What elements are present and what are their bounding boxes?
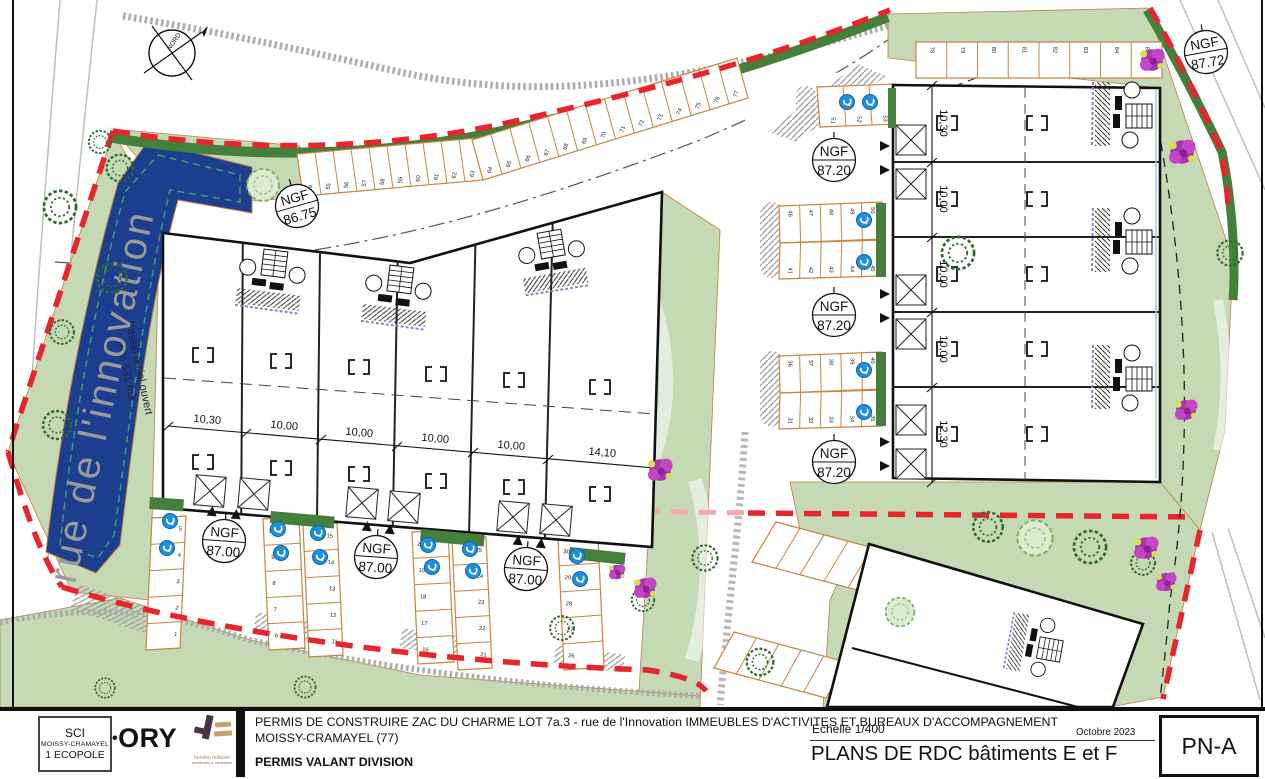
parking-col-6-10: 109876 xyxy=(263,517,305,650)
ngf-marker: NGF87.72 xyxy=(1180,21,1231,77)
scale-label: Echelle 1/400 xyxy=(812,722,885,736)
svg-text:83: 83 xyxy=(1082,47,1088,53)
svg-text:81: 81 xyxy=(1021,47,1027,53)
svg-text:6: 6 xyxy=(275,633,279,639)
svg-text:26: 26 xyxy=(568,653,575,660)
ngf-marker: NGF87.00 xyxy=(201,512,247,564)
title-divider-bar xyxy=(236,711,245,777)
building-e: 10,30 10,00 10,00 10,00 10,00 14,10 xyxy=(149,192,662,565)
svg-text:34: 34 xyxy=(848,416,854,423)
site-plan-drawing: Bassin à ciel ouvert env. 531 m3 5455565… xyxy=(0,0,1265,707)
svg-text:17: 17 xyxy=(421,621,428,628)
svg-text:NGF: NGF xyxy=(820,144,849,159)
svg-text:12,30: 12,30 xyxy=(937,420,949,448)
svg-text:50: 50 xyxy=(869,207,875,213)
svg-text:10,00: 10,00 xyxy=(497,439,525,453)
svg-text:10,00: 10,00 xyxy=(937,185,949,213)
architect-subtitle: architectes & urbanistes xyxy=(186,761,238,766)
svg-text:87.00: 87.00 xyxy=(508,571,543,588)
svg-text:18: 18 xyxy=(420,594,427,601)
parking-row-51-53: 515253 xyxy=(817,84,898,127)
svg-text:87.20: 87.20 xyxy=(817,163,851,178)
svg-text:47: 47 xyxy=(807,210,813,216)
svg-text:40: 40 xyxy=(869,357,875,363)
svg-text:33: 33 xyxy=(828,416,834,422)
svg-text:82: 82 xyxy=(1051,47,1057,53)
architect-logo-mark xyxy=(187,714,237,750)
svg-text:87.00: 87.00 xyxy=(358,559,393,576)
project-title-line2: MOISSY-CRAMAYEL (77) xyxy=(255,731,398,745)
svg-text:14,10: 14,10 xyxy=(588,446,616,460)
svg-text:NGF: NGF xyxy=(820,446,849,461)
scale-underline xyxy=(810,740,1155,741)
date-label: Octobre 2023 xyxy=(1076,727,1135,738)
svg-text:49: 49 xyxy=(848,208,854,214)
svg-text:48: 48 xyxy=(828,209,834,215)
svg-text:10,30: 10,30 xyxy=(193,413,221,427)
client-city: MOISSY-CRAMAYEL xyxy=(40,740,110,749)
parking-col-21-25: 2524232221 xyxy=(452,537,492,670)
svg-text:28: 28 xyxy=(566,601,573,608)
parking-col-11-15: 1514131211 xyxy=(303,523,343,657)
svg-text:36: 36 xyxy=(787,360,793,366)
svg-text:87.00: 87.00 xyxy=(206,543,241,560)
svg-text:84: 84 xyxy=(1113,47,1119,54)
svg-text:7: 7 xyxy=(273,607,277,613)
ory-logo: •ORY xyxy=(112,723,177,754)
svg-text:41: 41 xyxy=(787,267,793,273)
svg-text:22: 22 xyxy=(479,626,486,633)
svg-text:53: 53 xyxy=(882,115,888,121)
svg-text:10,00: 10,00 xyxy=(345,426,373,440)
svg-text:10,00: 10,00 xyxy=(421,432,449,446)
svg-text:38: 38 xyxy=(828,359,834,365)
svg-text:42: 42 xyxy=(807,267,813,273)
svg-text:44: 44 xyxy=(848,266,854,273)
parking-col-1-5: 54321 xyxy=(146,516,186,650)
skylight-boxes-f xyxy=(896,125,926,479)
svg-text:12: 12 xyxy=(330,613,337,620)
client-name: SCI xyxy=(40,727,110,740)
svg-text:87.20: 87.20 xyxy=(817,465,851,480)
sheet-number-box: PN-A xyxy=(1159,715,1259,777)
svg-text:51: 51 xyxy=(830,117,836,123)
svg-text:87.20: 87.20 xyxy=(817,318,851,333)
parking-row-78-85: 7879808182838485 xyxy=(916,42,1162,78)
svg-text:29: 29 xyxy=(564,575,571,582)
svg-text:23: 23 xyxy=(478,600,485,607)
ngf-marker: NGF87.00 xyxy=(353,528,399,580)
title-block: SCI MOISSY-CRAMAYEL 1 ECOPOLE •ORY hervi… xyxy=(0,707,1265,777)
svg-text:39: 39 xyxy=(848,358,854,364)
svg-text:19: 19 xyxy=(418,568,425,575)
svg-text:80: 80 xyxy=(990,47,996,53)
svg-text:43: 43 xyxy=(828,266,834,272)
svg-text:13: 13 xyxy=(329,586,336,593)
svg-text:10,00: 10,00 xyxy=(937,335,949,363)
svg-text:52: 52 xyxy=(856,116,862,122)
svg-text:NGF: NGF xyxy=(512,552,541,569)
architectural-site-plan-sheet: Bassin à ciel ouvert env. 531 m3 5455565… xyxy=(0,0,1265,779)
sheet-number: PN-A xyxy=(1182,733,1237,760)
svg-text:78: 78 xyxy=(928,47,934,53)
client-project: 1 ECOPOLE xyxy=(40,749,110,761)
north-compass: NORD xyxy=(144,26,208,80)
architect-logo: hervieu fellacier architectes & urbanist… xyxy=(186,714,238,766)
svg-text:10,00: 10,00 xyxy=(270,419,298,433)
svg-text:8: 8 xyxy=(272,581,276,587)
svg-text:15: 15 xyxy=(326,533,333,540)
project-title-line1: PERMIS DE CONSTRUIRE ZAC DU CHARME LOT 7… xyxy=(255,715,1058,729)
svg-text:32: 32 xyxy=(807,417,813,423)
svg-text:37: 37 xyxy=(807,360,813,366)
building-f: 10,30 10,00 10,00 10,00 12,30 xyxy=(876,81,1160,487)
svg-text:46: 46 xyxy=(787,210,793,216)
svg-text:31: 31 xyxy=(787,417,793,423)
svg-text:10,30: 10,30 xyxy=(937,109,949,137)
svg-text:30: 30 xyxy=(563,549,570,556)
svg-text:NGF: NGF xyxy=(210,524,239,541)
svg-text:79: 79 xyxy=(959,47,965,53)
svg-text:NGF: NGF xyxy=(362,540,391,557)
permit-type: PERMIS VALANT DIVISION xyxy=(255,755,413,769)
drawing-title: PLANS DE RDC bâtiments E et F xyxy=(811,742,1117,766)
client-box: SCI MOISSY-CRAMAYEL 1 ECOPOLE xyxy=(38,716,112,772)
svg-text:NGF: NGF xyxy=(820,299,849,314)
parking-diagonal-2 xyxy=(714,632,846,698)
